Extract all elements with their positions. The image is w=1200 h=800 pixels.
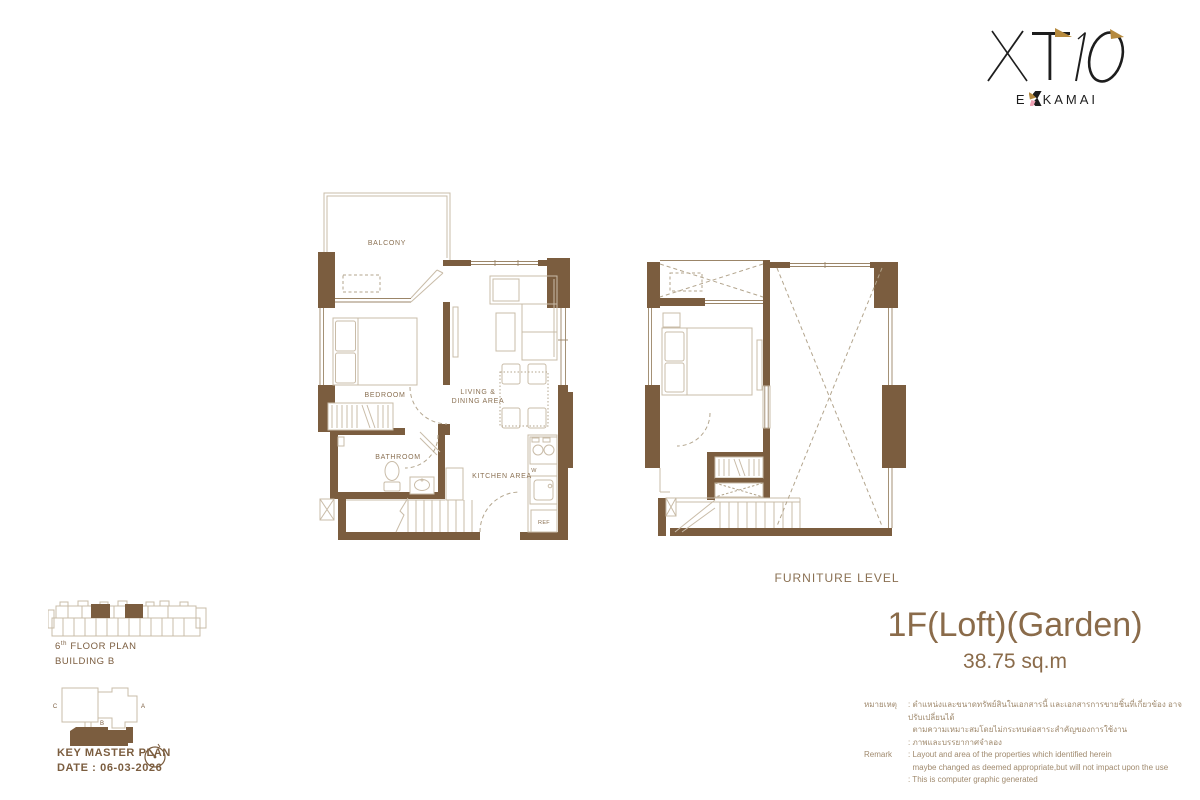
remark-row: หมายเหตุ : ตำแหน่งและขนาดทรัพย์สินในเอกส…	[864, 699, 1194, 724]
washer-label: W	[531, 468, 537, 474]
date-caption: DATE : 06-03-2026	[57, 762, 162, 774]
living-label-line2: DINING AREA	[452, 398, 505, 405]
logo-sub-prefix: E	[1016, 92, 1028, 107]
key-label-a: A	[141, 704, 145, 710]
bathroom-label: BATHROOM	[375, 454, 421, 461]
logo-subtitle: EKAMAI	[982, 91, 1132, 107]
balcony-label: BALCONY	[368, 240, 406, 247]
kitchen-fixtures	[528, 435, 557, 532]
floor-plan-sheet: EKAMAI	[0, 0, 1200, 800]
remark-row: : ภาพและบรรยากาศจำลอง	[864, 737, 1194, 750]
highlighted-unit	[91, 604, 110, 618]
bathroom-fixtures	[338, 432, 440, 494]
remark-row-label	[864, 737, 908, 750]
wardrobe	[707, 452, 763, 500]
remark-row-text: : Layout and area of the properties whic…	[908, 749, 1194, 762]
stairs	[666, 498, 800, 532]
unit-type-title: 1F(Loft)(Garden)	[860, 606, 1170, 645]
bedroom-furniture	[328, 318, 447, 430]
balcony-area	[324, 193, 450, 302]
remark-row-text: : ตำแหน่งและขนาดทรัพย์สินในเอกสารนี้ และ…	[908, 699, 1194, 724]
brand-logo: EKAMAI	[982, 26, 1132, 114]
xt10-logo-icon	[982, 26, 1132, 86]
key-label-b: B	[100, 721, 104, 727]
remark-row: maybe changed as deemed appropriate,but …	[864, 762, 1194, 775]
bedroom-label: BEDROOM	[364, 392, 405, 399]
remark-row: : This is computer graphic generated	[864, 774, 1194, 787]
ekkamai-k-icon	[1029, 91, 1042, 106]
remark-row-text: maybe changed as deemed appropriate,but …	[908, 762, 1194, 775]
fridge-label: REF	[538, 520, 550, 526]
key-label-c: C	[53, 704, 58, 710]
remark-row-text: : ภาพและบรรยากาศจำลอง	[908, 737, 1194, 750]
remark-row-label: Remark	[864, 749, 908, 762]
unit-area: 38.75 sq.m	[860, 650, 1170, 674]
floor-plan-furniture-level	[630, 240, 930, 560]
floor-plan-level1: BALCONY BEDROOM LIVING & DINING AREA BAT…	[310, 180, 590, 560]
double-height-void	[777, 268, 882, 526]
highlighted-unit	[125, 604, 143, 618]
living-furniture	[453, 276, 557, 428]
remark-row-text: ตามความเหมาะสมโดยไม่กระทบต่อสาระสำคัญของ…	[908, 724, 1194, 737]
floor-plan-text: FLOOR PLAN	[67, 641, 136, 652]
balcony-void	[660, 261, 763, 298]
furniture-level-caption: FURNITURE LEVEL	[757, 571, 917, 585]
bedroom-furniture	[662, 313, 762, 446]
remark-row-label	[864, 762, 908, 775]
walls	[645, 260, 906, 536]
remark-row-label	[864, 724, 908, 737]
building-caption: BUILDING B	[55, 656, 115, 667]
remark-row-label: หมายเหตุ	[864, 699, 908, 724]
living-label-line1: LIVING &	[460, 389, 495, 396]
remark-row: Remark : Layout and area of the properti…	[864, 749, 1194, 762]
highlighted-building-b	[70, 727, 133, 746]
remark-row-label	[864, 774, 908, 787]
building-strip-keyplan	[48, 596, 208, 644]
remark-row: ตามความเหมาะสมโดยไม่กระทบต่อสาระสำคัญของ…	[864, 724, 1194, 737]
remark-block: หมายเหตุ : ตำแหน่งและขนาดทรัพย์สินในเอกส…	[864, 699, 1194, 787]
kitchen-label: KITCHEN AREA	[472, 473, 532, 480]
logo-sub-suffix: KAMAI	[1043, 92, 1098, 107]
key-master-plan-caption: KEY MASTER PLAN	[57, 747, 171, 759]
floor-plan-caption: 6th FLOOR PLAN	[55, 641, 137, 652]
remark-row-text: : This is computer graphic generated	[908, 774, 1194, 787]
